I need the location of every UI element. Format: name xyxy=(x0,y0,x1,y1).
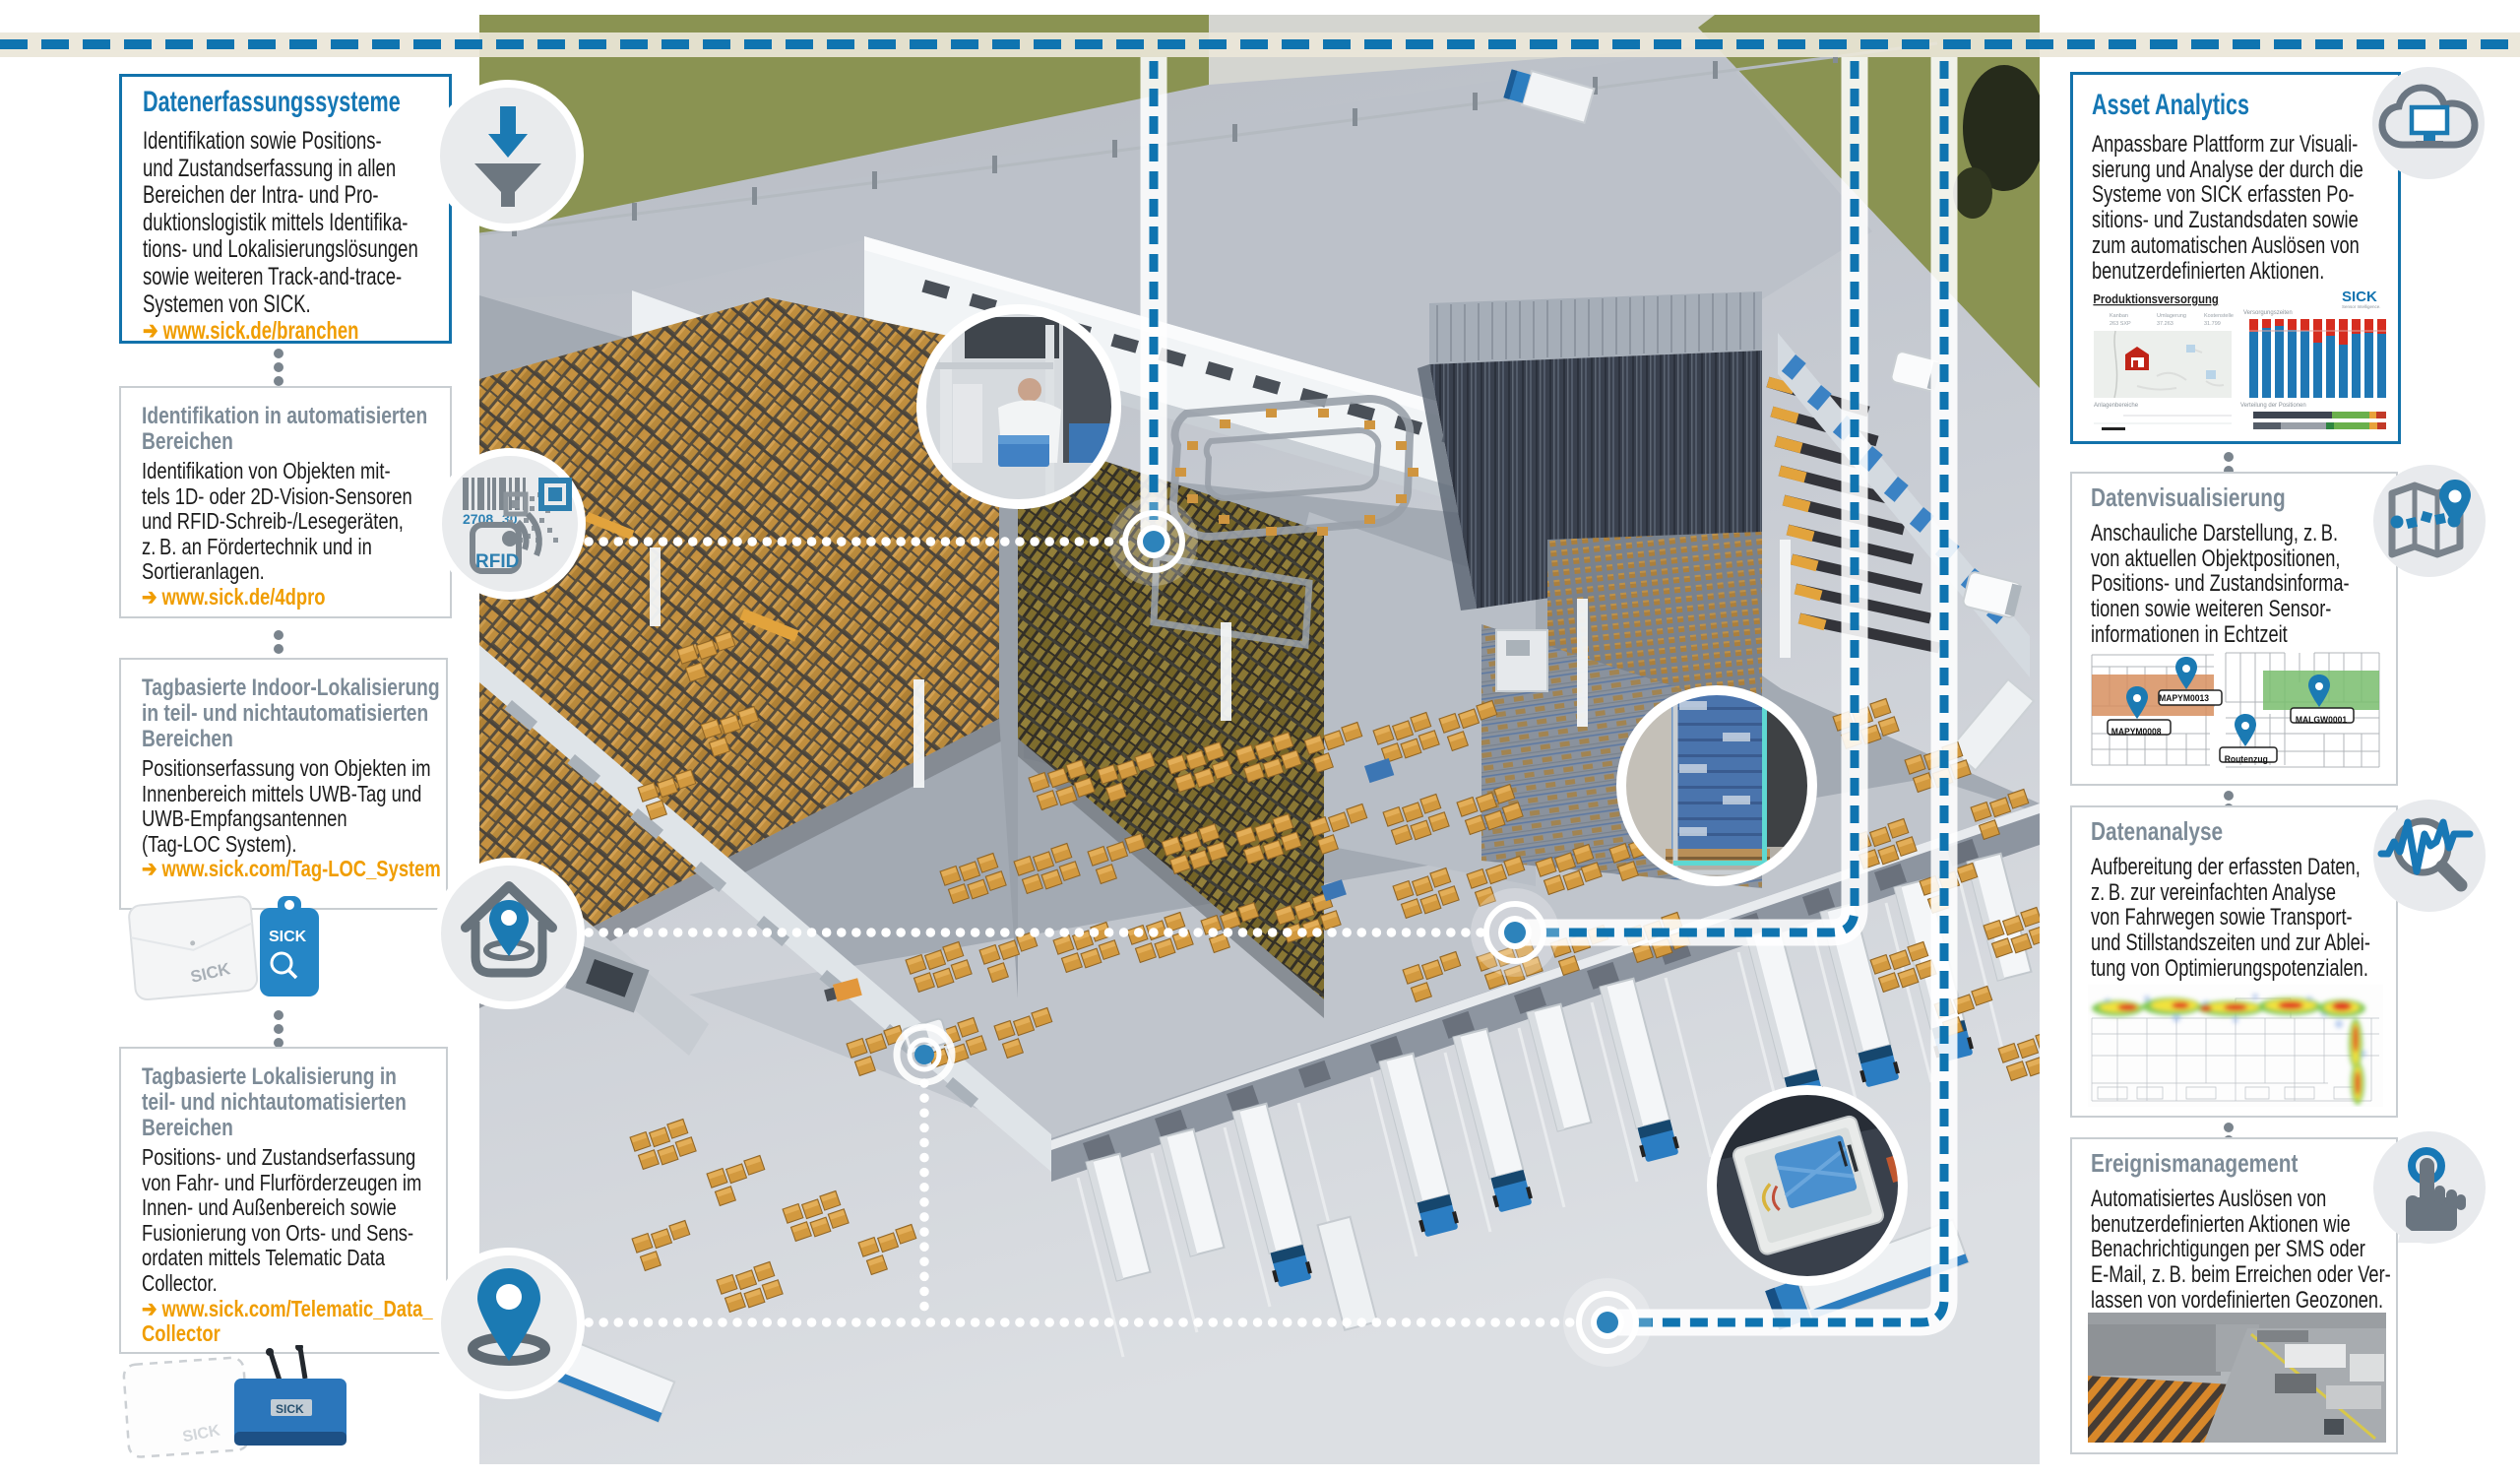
svg-text:MAPYM0013: MAPYM0013 xyxy=(2159,693,2209,703)
svg-text:MAPYM0008: MAPYM0008 xyxy=(2111,727,2162,737)
svg-text:Kostenstelle: Kostenstelle xyxy=(2204,313,2234,319)
svg-text:SICK: SICK xyxy=(2342,289,2377,305)
svg-text:SICK: SICK xyxy=(276,1402,304,1416)
svg-text:Routenzug: Routenzug xyxy=(2225,754,2268,764)
svg-text:Umlagerung: Umlagerung xyxy=(2157,313,2186,319)
svg-text:MALGW0001: MALGW0001 xyxy=(2296,715,2347,725)
svg-text:Kanban: Kanban xyxy=(2110,313,2128,319)
svg-text:Versorgungszeiten: Versorgungszeiten xyxy=(2243,310,2293,316)
svg-text:RFID: RFID xyxy=(475,551,519,572)
svg-text:263 SXP: 263 SXP xyxy=(2110,321,2131,327)
svg-text:Produktionsversorgung: Produktionsversorgung xyxy=(2093,291,2218,306)
svg-text:Sensor Intelligence.: Sensor Intelligence. xyxy=(2342,304,2381,309)
svg-text:Anlagenbereiche: Anlagenbereiche xyxy=(2094,403,2139,409)
svg-text:SICK: SICK xyxy=(269,929,307,945)
svg-text:Verteilung der Positionen: Verteilung der Positionen xyxy=(2240,403,2306,409)
svg-text:31.799: 31.799 xyxy=(2204,321,2221,327)
svg-text:37.263: 37.263 xyxy=(2157,321,2173,327)
